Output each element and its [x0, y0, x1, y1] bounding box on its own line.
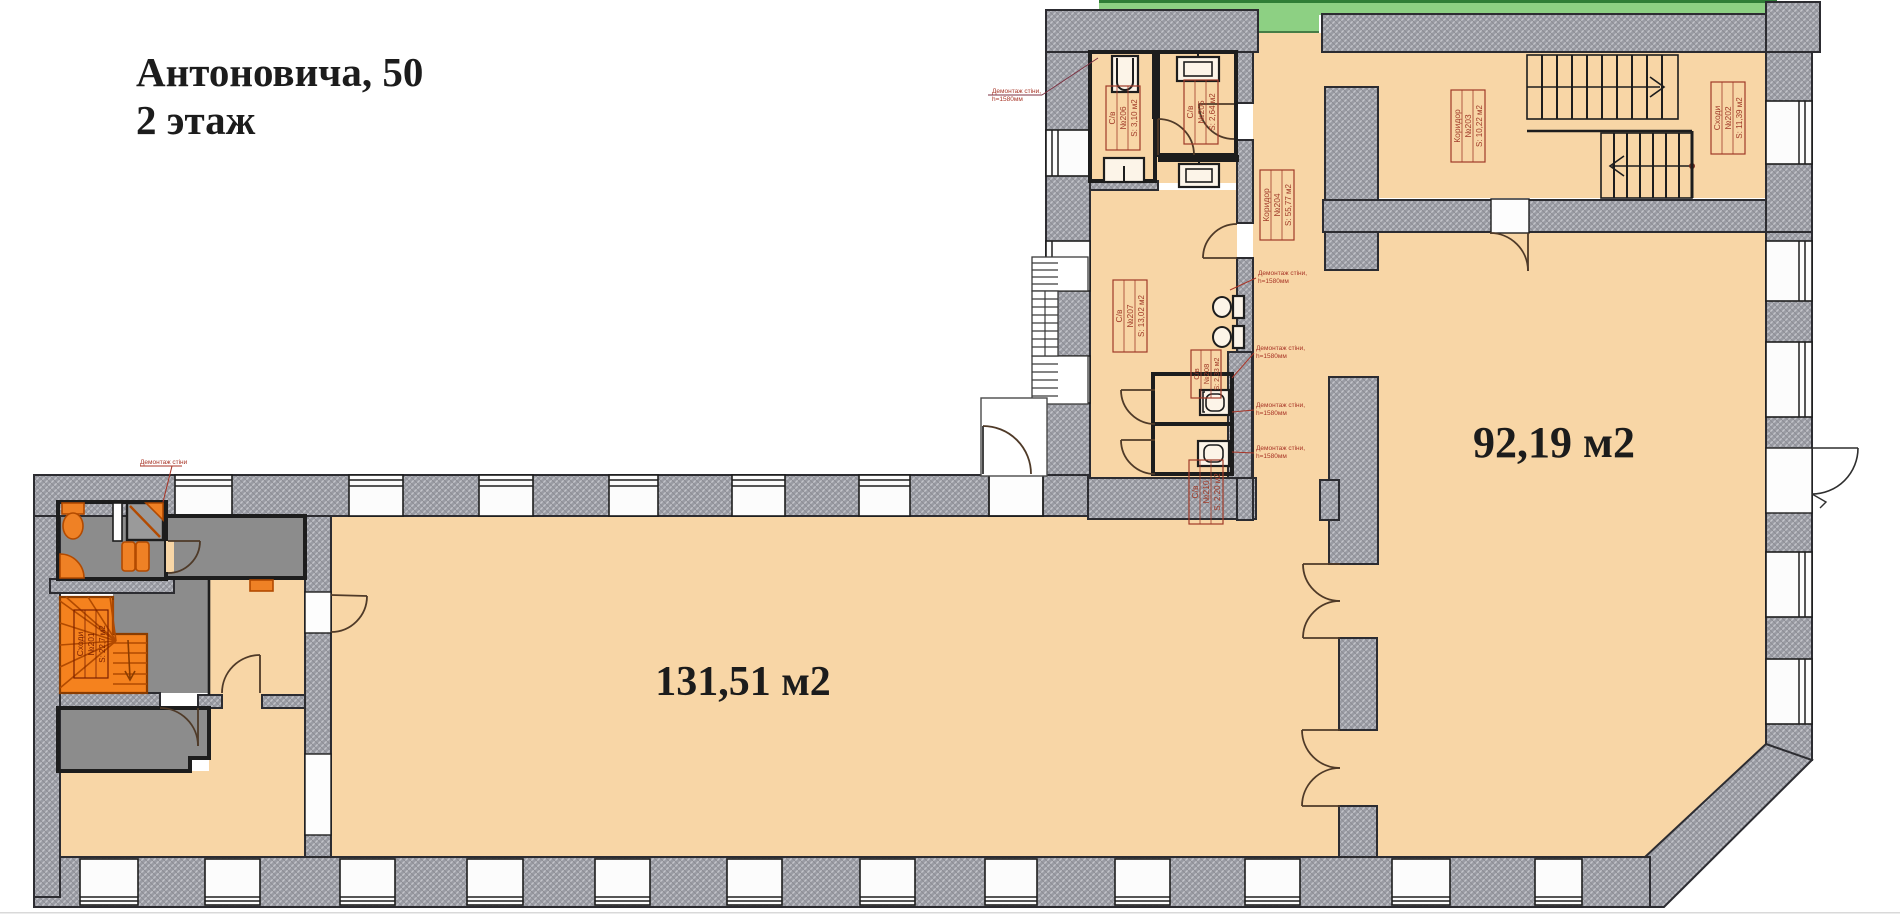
svg-text:S: 2,64 м2: S: 2,64 м2	[1208, 93, 1217, 131]
svg-text:С/в: С/в	[1192, 368, 1201, 380]
svg-text:№201: №201	[86, 632, 96, 656]
svg-text:№205: №205	[1196, 100, 1206, 124]
svg-text:Демонтаж стіни,: Демонтаж стіни,	[992, 87, 1041, 95]
svg-text:92,19 м2: 92,19 м2	[1473, 418, 1635, 467]
svg-text:h=1580мм: h=1580мм	[1256, 353, 1287, 360]
svg-text:С/в: С/в	[1107, 111, 1117, 125]
svg-text:Демонтаж стіни,: Демонтаж стіни,	[1258, 269, 1307, 277]
svg-text:Коридор: Коридор	[1452, 109, 1462, 143]
svg-text:S: 55,77 м2: S: 55,77 м2	[1284, 183, 1293, 226]
svg-text:Сходи: Сходи	[75, 631, 85, 656]
svg-text:№210: №210	[1201, 480, 1211, 504]
svg-text:S: 13,02 м2: S: 13,02 м2	[1137, 294, 1146, 337]
svg-text:Демонтаж стіни: Демонтаж стіни	[140, 458, 188, 466]
svg-text:h=1580мм: h=1580мм	[1256, 410, 1287, 417]
svg-text:№203: №203	[1463, 114, 1473, 138]
svg-text:2 этаж: 2 этаж	[136, 97, 256, 143]
svg-text:№204: №204	[1272, 193, 1282, 217]
svg-text:h=1580мм: h=1580мм	[992, 96, 1023, 103]
svg-text:131,51 м2: 131,51 м2	[655, 659, 831, 705]
svg-text:S: 2,20 м2: S: 2,20 м2	[1213, 473, 1222, 511]
svg-text:S: 10,22 м2: S: 10,22 м2	[1475, 104, 1484, 147]
svg-text:Сходи: Сходи	[1712, 105, 1722, 130]
svg-text:S: 22,7 м2: S: 22,7 м2	[98, 625, 107, 663]
svg-text:h=1580мм: h=1580мм	[1256, 453, 1287, 460]
svg-text:С/в: С/в	[1114, 309, 1124, 323]
svg-text:Демонтаж стіни,: Демонтаж стіни,	[1256, 401, 1305, 409]
svg-text:h=1580мм: h=1580мм	[1258, 278, 1289, 285]
svg-text:S: 11,39 м2: S: 11,39 м2	[1735, 97, 1744, 139]
svg-text:Антоновича, 50: Антоновича, 50	[136, 49, 423, 95]
svg-text:№208: №208	[1202, 364, 1211, 385]
svg-text:S: 3,10 м2: S: 3,10 м2	[1130, 99, 1139, 137]
svg-text:№202: №202	[1723, 106, 1733, 130]
svg-text:S: 2,33 м2: S: 2,33 м2	[1214, 357, 1221, 390]
svg-text:С/в: С/в	[1190, 485, 1200, 499]
svg-text:Демонтаж стіни,: Демонтаж стіни,	[1256, 344, 1305, 352]
svg-text:Коридор: Коридор	[1261, 188, 1271, 222]
svg-text:№207: №207	[1125, 304, 1135, 328]
svg-text:Демонтаж стіни,: Демонтаж стіни,	[1256, 444, 1305, 452]
svg-text:С/в: С/в	[1185, 105, 1195, 119]
svg-text:№206: №206	[1118, 106, 1128, 130]
